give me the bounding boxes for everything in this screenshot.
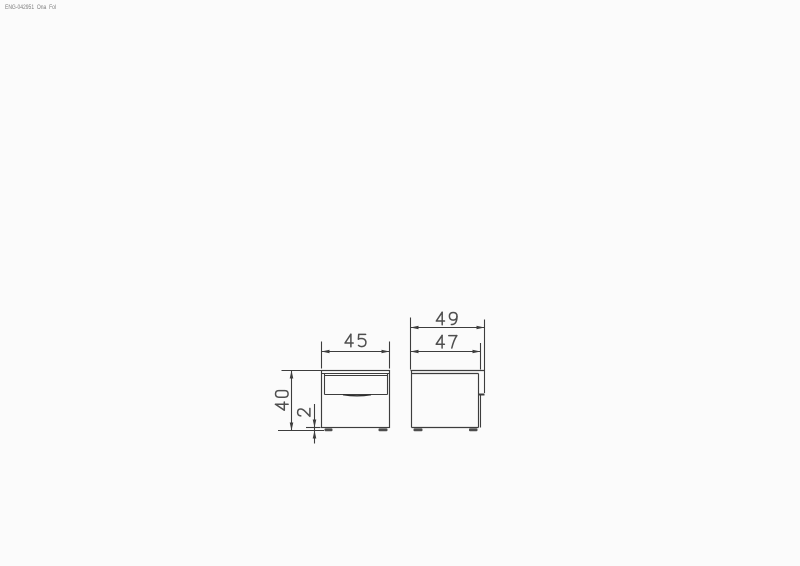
svg-text:ENG-042951 Ona Fol: ENG-042951 Ona Fol	[5, 4, 56, 11]
